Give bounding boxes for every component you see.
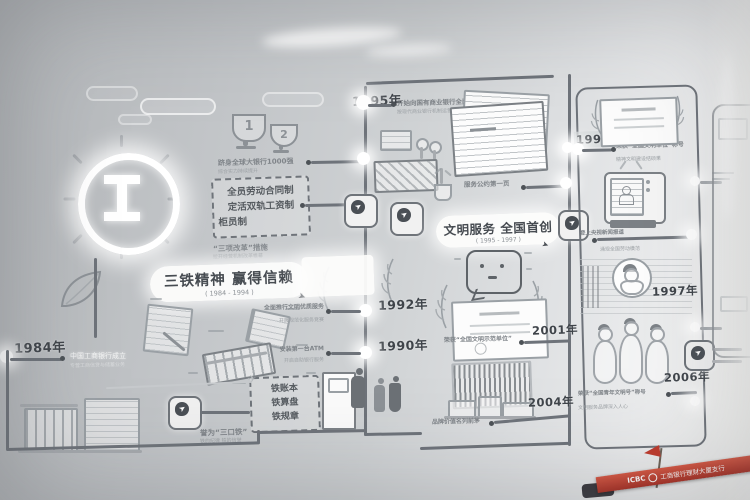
caption-1990-sub: 开启自助银行服务 [242,357,324,365]
notebook-drawing [143,304,194,357]
branch-sign-name: 工商银行理财大厦支行 [660,462,726,481]
cloud-doodle [262,92,324,107]
trophy-rank-2: 2 [270,124,298,147]
branch-sign-brand: ICBC [627,474,646,484]
plant-pot-icon [434,184,452,201]
timeline-year-1992: 1992年 [378,293,428,314]
reform-line-3: 柜员制 [218,213,304,231]
three-irons-box: 铁账本 铁算盘 铁规章 [249,375,321,433]
reform-caption-sub: 拉开经营机制改革帷幕 [213,252,309,261]
era1-banner: 三铁精神 赢得信赖 ( 1984 - 1994 ) [149,261,308,302]
trophy-caption-sub: 综合实力持续提升 [218,167,310,176]
timeline-node [690,176,700,186]
cloud-doodle [86,86,138,101]
laurel-icon [432,282,450,334]
cloud-doodle [140,98,216,115]
red-flag-icon [643,445,661,459]
icbc-seal-icon [648,472,658,482]
branch-sign: ICBC 工商银行理财大厦支行 [596,455,750,493]
cursor-node-icon: ➤ [168,396,202,430]
caption-1984: 中国工商银行成立 [70,352,170,361]
cursor-node-icon: ➤ [344,194,378,228]
reform-measures-box: 全员劳动合同制 定活双轨工资制 柜员制 [211,175,311,238]
timeline-node [690,322,700,332]
caption-2004: 品牌价值名列前茅 [432,417,490,426]
cloud-doodle [118,114,152,125]
cursor-node-icon: ➤ [390,202,424,236]
timeline-year-1997: 1997年 [652,282,699,300]
timeline-year-2004: 2004年 [528,393,575,411]
docs-caption: 服务公约第一页 [464,179,524,189]
leaf-icon [58,268,104,314]
timeline-node [690,396,700,406]
white-screen-panel [301,255,374,297]
timeline-node [686,229,697,240]
timeline-node [356,95,371,110]
caption-1990: 安装第一台ATM [250,345,324,355]
timeline-year-1984: 1984年 [14,336,66,357]
award-certificate-drawing [599,97,679,148]
caption-1984-sub: 专营工商信贷与储蓄业务 [70,361,170,370]
timeline-node [357,152,370,165]
light-streak [366,42,453,58]
wall-photo: 1 2 跻身全球大银行1000强 综合实力持续提升 全员劳动合同制 定活双轨工资… [0,0,750,500]
timeline-year-1990: 1990年 [378,334,428,355]
trophy-rank-1: 1 [232,114,266,142]
timeline-node [560,177,572,189]
edge-doodle [720,296,748,312]
caption-1992-sub: 开展规范化服务竞赛 [246,317,324,325]
caption-1992: 全面推行文明优质服务 [250,303,324,313]
icbc-logo-sun [60,135,184,259]
icbc-logo-ring [78,153,180,255]
pointer-cursor-icon: ➤ [541,239,550,250]
cursor-node-icon: ➤ [684,340,715,371]
plane-swoosh [106,381,252,389]
iron-line-3: 铁规章 [256,410,314,426]
timeline-year-2001: 2001年 [532,321,579,339]
